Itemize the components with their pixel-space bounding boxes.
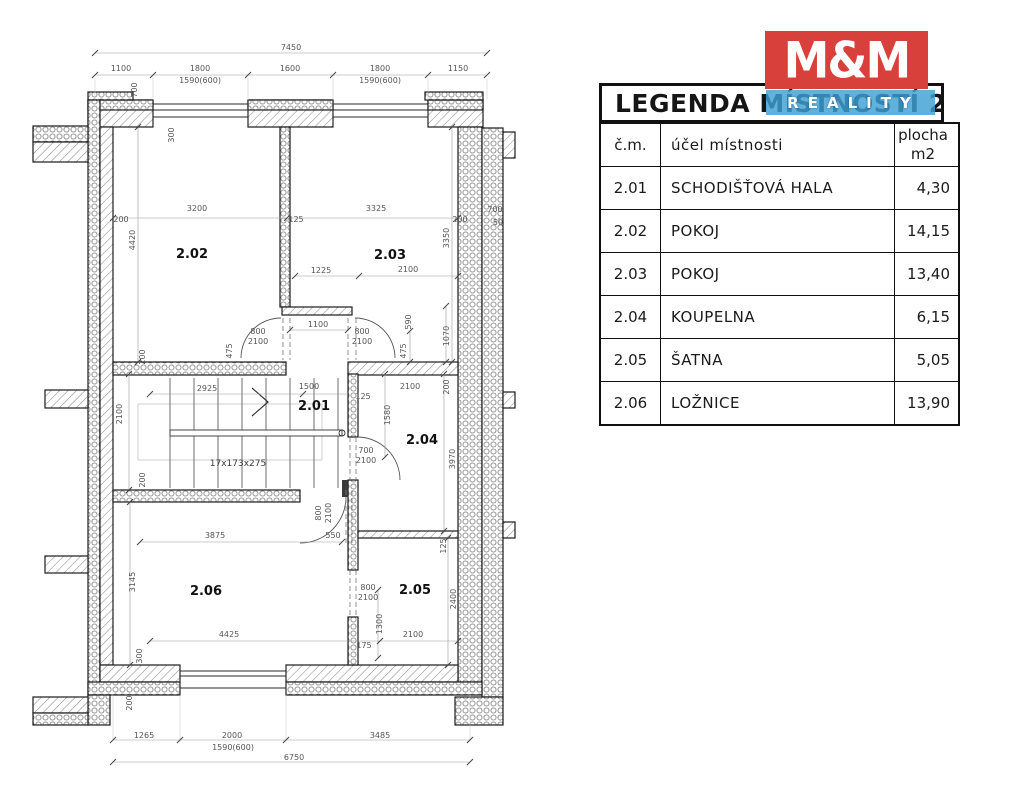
room-number: 2.04 (600, 296, 661, 339)
room-number: 2.03 (600, 253, 661, 296)
dim-label: 1800 (370, 64, 390, 73)
dim-label: 7450 (281, 43, 301, 52)
table-row: 2.01 SCHODIŠŤOVÁ HALA 4,30 (600, 167, 959, 210)
dim-label: 200 (138, 349, 147, 364)
dim-label: 175 (356, 641, 371, 650)
table-row: 2.04 KOUPELNA 6,15 (600, 296, 959, 339)
dim-label: 2100 (398, 265, 418, 274)
dim-label: 3350 (442, 228, 451, 248)
dim-label: 1100 (111, 64, 131, 73)
mm-logo-text: M&M (784, 31, 910, 89)
dim-label: 125 (439, 538, 448, 553)
room-name: POKOJ (661, 253, 895, 296)
dim-label: 2100 (352, 337, 372, 346)
dim-label: 2100 (248, 337, 268, 346)
room-number: 2.01 (600, 167, 661, 210)
dim-label: 3485 (370, 731, 390, 740)
dim-label: 1800 (190, 64, 210, 73)
staircase (138, 378, 345, 488)
dim-label: 200 (138, 472, 147, 487)
dim-label: 200 (442, 379, 451, 394)
door-to-room-205 (350, 570, 356, 617)
dim-label: 800 (250, 327, 265, 336)
dim-label: 50 (493, 218, 503, 227)
dim-label: 4420 (128, 230, 137, 250)
dim-label: 2925 (197, 384, 217, 393)
dim-label: 1500 (299, 382, 319, 391)
dim-label: 1600 (280, 64, 300, 73)
col-header-number: č.m. (600, 123, 661, 167)
reality-watermark-band: REALITY (766, 90, 935, 115)
dim-label: 2100 (403, 630, 423, 639)
room-area: 13,40 (895, 253, 960, 296)
room-area: 5,05 (895, 339, 960, 382)
dim-label: 1265 (134, 731, 154, 740)
dim-label: 3325 (366, 204, 386, 213)
room-number: 2.02 (600, 210, 661, 253)
dim-label: 3145 (128, 572, 137, 592)
room-area: 4,30 (895, 167, 960, 210)
dim-label: 200 (113, 215, 128, 224)
dimension-ticks (92, 50, 490, 765)
window-top-right (333, 100, 428, 127)
dim-label: 2100 (358, 593, 378, 602)
dim-label: 1150 (448, 64, 468, 73)
col-header-area-line2: m2 (896, 145, 950, 164)
dim-label: 3970 (448, 449, 457, 469)
dim-label: 2000 (222, 731, 242, 740)
col-header-area-line1: plocha (896, 126, 950, 145)
floorplan-page: 7450 1100 1800 1600 1800 1150 1590(600) … (0, 0, 1024, 803)
dim-label: 590 (404, 314, 413, 329)
dim-label: 800 (314, 505, 323, 520)
outer-walls (33, 92, 515, 725)
mm-reality-logo: M&M (765, 31, 928, 89)
legend-header-row: č.m. účel místnosti plocha m2 (600, 123, 959, 167)
room-area: 14,15 (895, 210, 960, 253)
dim-label: 700 (130, 82, 139, 97)
dim-label: 1300 (375, 614, 384, 634)
col-header-purpose: účel místnosti (661, 123, 895, 167)
dim-label: 700 (487, 205, 502, 214)
window-top-left (153, 100, 248, 127)
legend-table: č.m. účel místnosti plocha m2 2.01 SCHOD… (599, 122, 960, 426)
dim-label: 3875 (205, 531, 225, 540)
dim-label: 200 (125, 695, 134, 710)
room-name: LOŽNICE (661, 382, 895, 426)
dim-label: 1580 (383, 405, 392, 425)
col-header-area: plocha m2 (895, 123, 960, 167)
dim-label: 1590(600) (179, 76, 221, 85)
room-name: POKOJ (661, 210, 895, 253)
table-row: 2.02 POKOJ 14,15 (600, 210, 959, 253)
dim-label: 800 (354, 327, 369, 336)
dim-label: 300 (135, 648, 144, 663)
dimension-lines (95, 53, 487, 762)
window-bottom (180, 665, 286, 695)
stairs-label: 17x173x275 (210, 459, 266, 469)
dim-label: 700 (358, 446, 373, 455)
dim-label: 200 (452, 215, 467, 224)
dim-label: 3200 (187, 204, 207, 213)
dim-label: 1070 (442, 326, 451, 346)
room-number: 2.06 (600, 382, 661, 426)
room-label-205: 2.05 (399, 583, 431, 598)
room-label-201: 2.01 (298, 399, 330, 414)
room-labels: 2.01 2.02 2.03 2.04 2.05 2.06 (176, 247, 438, 599)
dim-label: 800 (360, 583, 375, 592)
dim-label: 2100 (324, 503, 333, 523)
dim-label: 6750 (284, 753, 304, 762)
dim-label: 4425 (219, 630, 239, 639)
dim-label: 550 (325, 531, 340, 540)
dim-label: 475 (399, 343, 408, 358)
table-row: 2.06 LOŽNICE 13,90 (600, 382, 959, 426)
room-label-204: 2.04 (406, 433, 438, 448)
dim-label: 300 (167, 127, 176, 142)
room-label-202: 2.02 (176, 247, 208, 262)
room-name: KOUPELNA (661, 296, 895, 339)
dim-label: 1225 (311, 266, 331, 275)
dim-label: 2100 (115, 404, 124, 424)
dim-label: 125 (355, 392, 370, 401)
dim-label: 1100 (308, 320, 328, 329)
room-name: ŠATNA (661, 339, 895, 382)
dim-label: 475 (225, 343, 234, 358)
room-label-206: 2.06 (190, 584, 222, 599)
dim-label: 2100 (356, 456, 376, 465)
room-area: 13,90 (895, 382, 960, 426)
reality-logo-text: REALITY (781, 94, 920, 112)
dim-label: 1590(600) (359, 76, 401, 85)
table-row: 2.03 POKOJ 13,40 (600, 253, 959, 296)
dim-label: 1590(600) (212, 743, 254, 752)
room-name: SCHODIŠŤOVÁ HALA (661, 167, 895, 210)
room-label-203: 2.03 (374, 248, 406, 263)
room-area: 6,15 (895, 296, 960, 339)
room-number: 2.05 (600, 339, 661, 382)
table-row: 2.05 ŠATNA 5,05 (600, 339, 959, 382)
dim-label: 2100 (400, 382, 420, 391)
dim-label: 125 (288, 215, 303, 224)
dim-label: 2400 (449, 589, 458, 609)
